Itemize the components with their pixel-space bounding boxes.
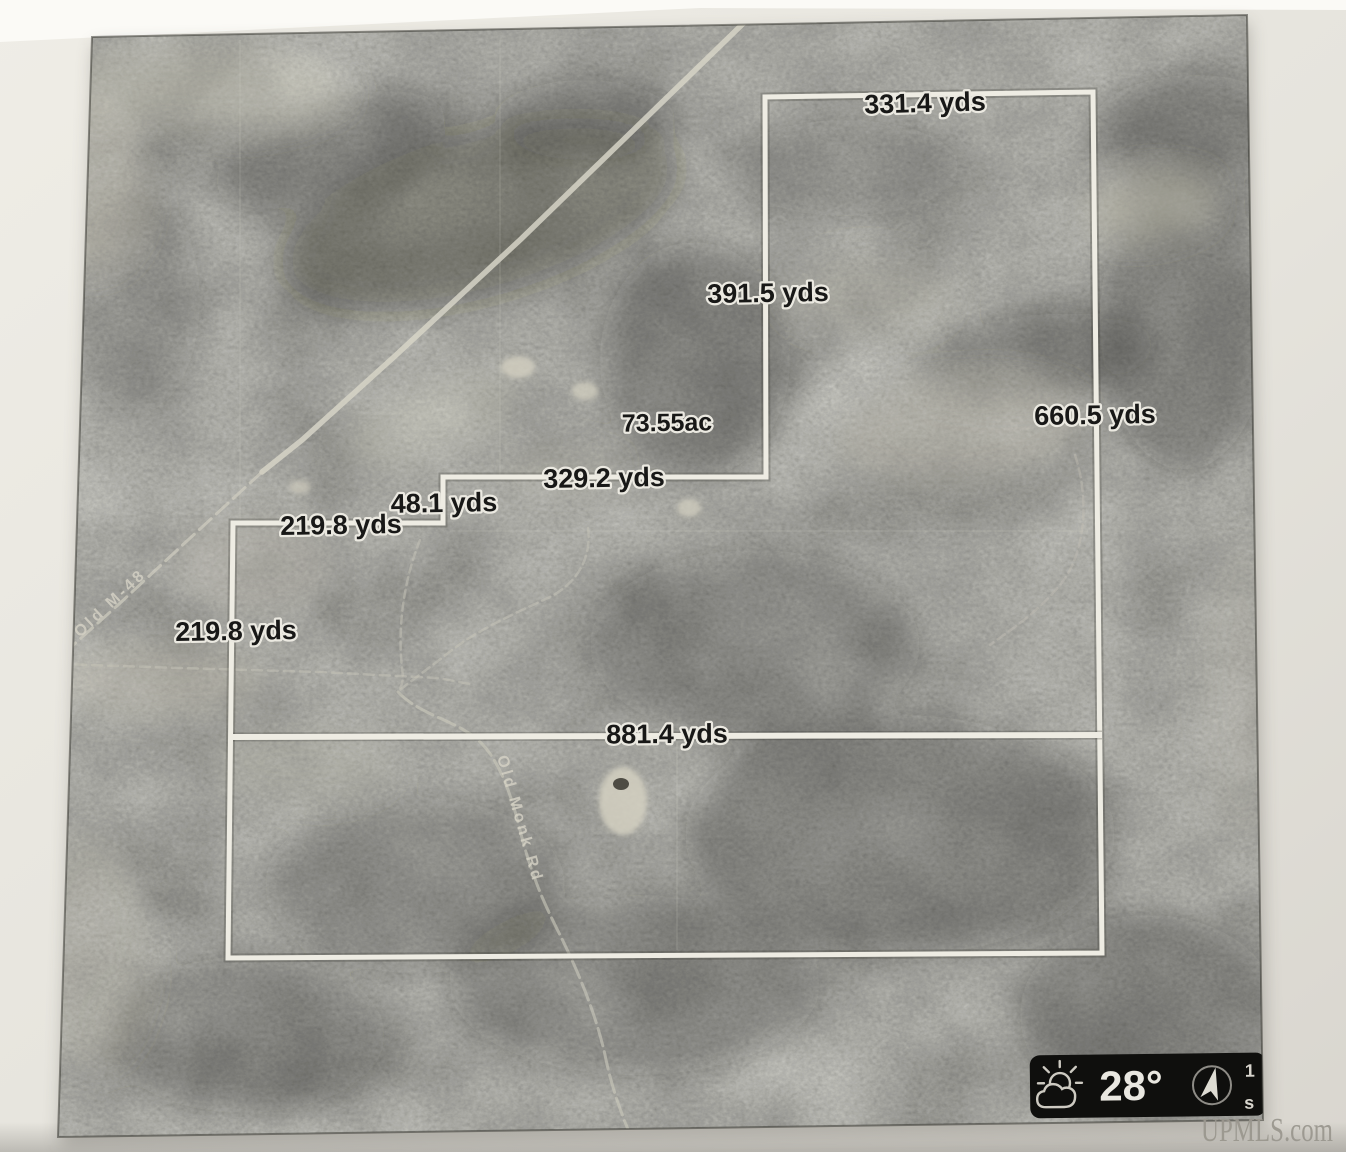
watermark: UPMLS.com (1201, 1112, 1333, 1149)
photo-tint (30, 0, 1290, 1152)
map-canvas: Old M-48 Old Monk Rd 331.4 yds 391.5 yds… (0, 0, 1346, 1152)
scanned-aerial-map-photo: Old M-48 Old Monk Rd 331.4 yds 391.5 yds… (0, 0, 1346, 1152)
aerial-photo: Old M-48 Old Monk Rd 331.4 yds 391.5 yds… (28, 0, 1300, 1152)
